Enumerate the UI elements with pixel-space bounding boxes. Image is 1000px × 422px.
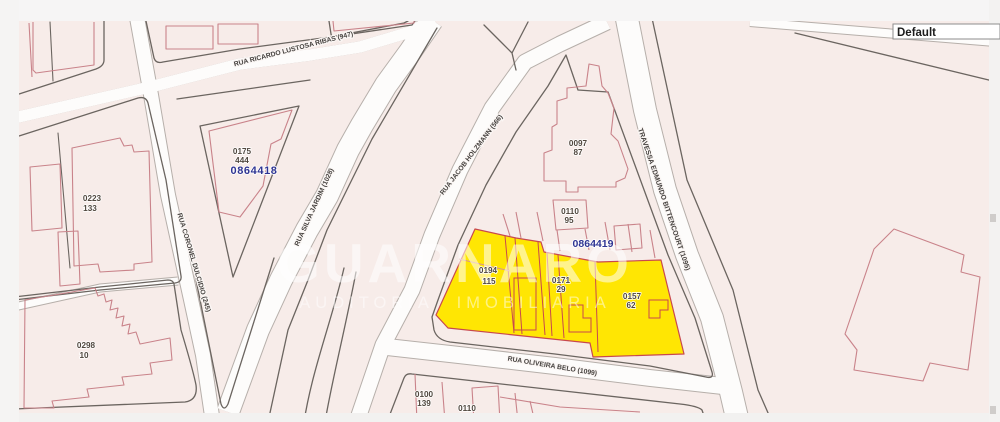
svg-text:115: 115 <box>482 277 496 286</box>
svg-text:95: 95 <box>564 216 574 225</box>
svg-text:0864419: 0864419 <box>573 238 614 250</box>
svg-text:139: 139 <box>417 399 431 408</box>
svg-text:29: 29 <box>556 285 566 294</box>
svg-text:10: 10 <box>79 351 89 360</box>
svg-text:62: 62 <box>626 301 636 310</box>
svg-text:0110: 0110 <box>561 207 579 216</box>
svg-text:133: 133 <box>83 204 97 213</box>
svg-text:0864418: 0864418 <box>230 165 277 177</box>
svg-text:0223: 0223 <box>83 194 102 203</box>
svg-text:0298: 0298 <box>77 341 96 350</box>
svg-text:0171: 0171 <box>552 276 571 285</box>
svg-text:0157: 0157 <box>623 292 642 301</box>
svg-text:0175: 0175 <box>233 147 252 156</box>
svg-text:0100: 0100 <box>415 390 434 399</box>
svg-text:0110: 0110 <box>458 404 476 413</box>
svg-text:0194: 0194 <box>479 266 498 275</box>
svg-text:Default: Default <box>897 27 936 39</box>
svg-text:0097: 0097 <box>569 139 588 148</box>
svg-text:AUDITORIA IMOBILIARIA: AUDITORIA IMOBILIARIA <box>299 294 610 312</box>
svg-text:444: 444 <box>235 156 249 165</box>
svg-text:87: 87 <box>573 148 583 157</box>
